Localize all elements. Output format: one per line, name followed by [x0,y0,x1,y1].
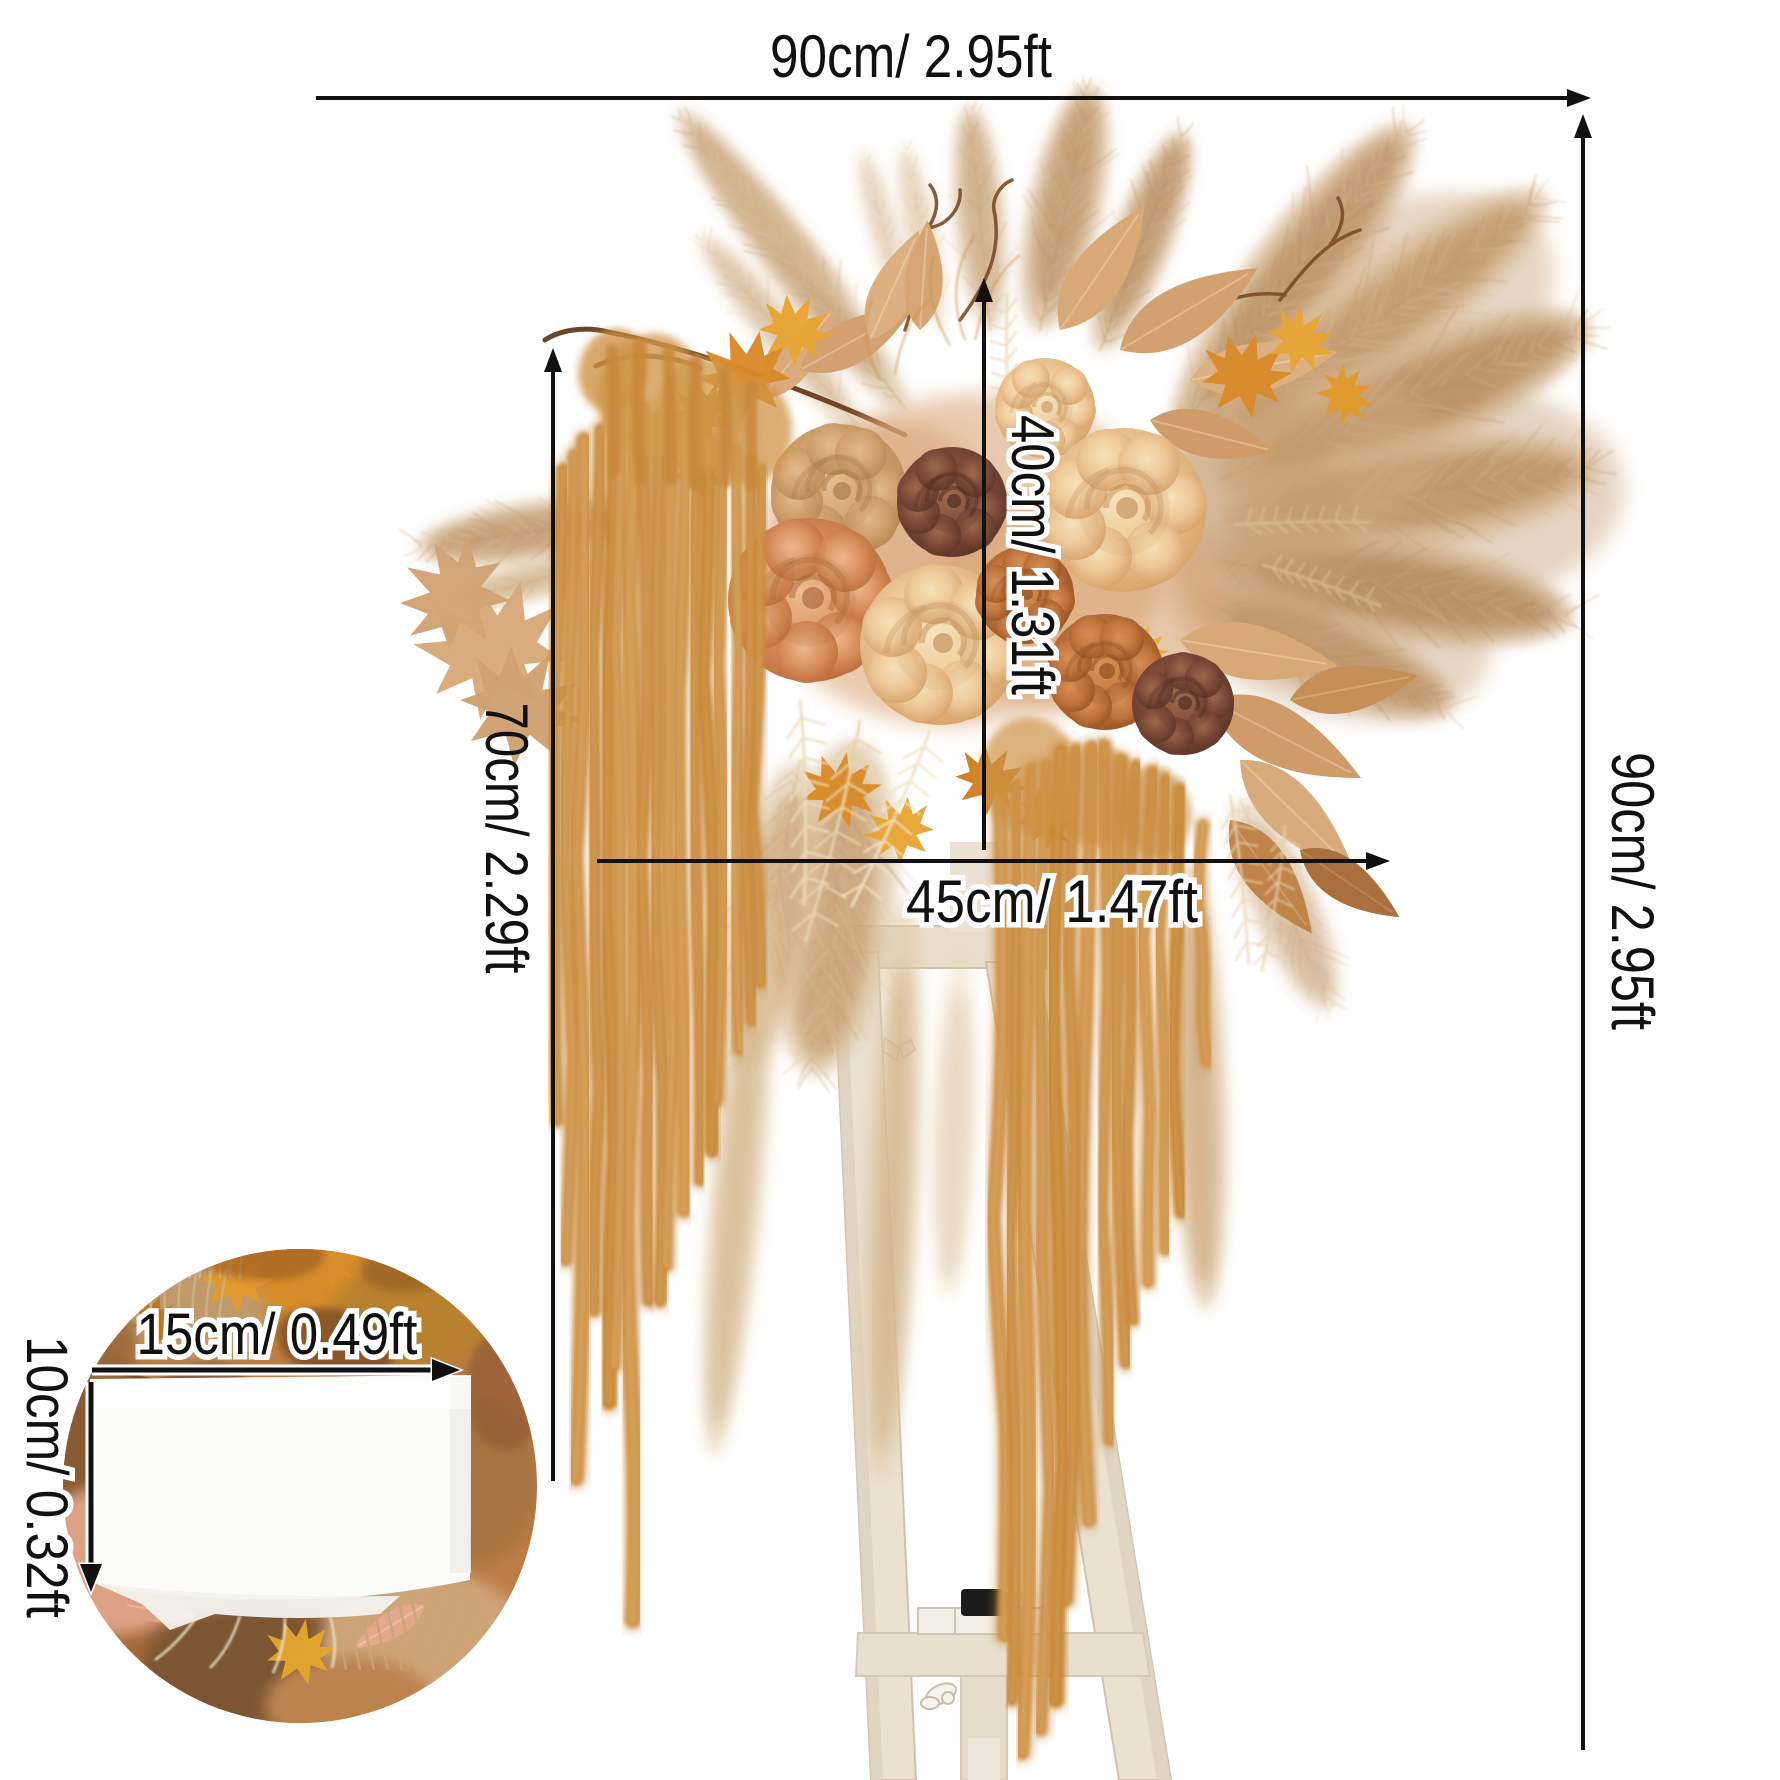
svg-text:45cm/ 1.47ft: 45cm/ 1.47ft [906,868,1198,935]
svg-text:15cm/ 0.49ft: 15cm/ 0.49ft [137,1302,418,1367]
svg-text:40cm/ 1.31ft: 40cm/ 1.31ft [999,415,1066,695]
svg-text:10cm/ 0.32ft: 10cm/ 0.32ft [14,1336,79,1618]
svg-text:90cm/ 2.95ft: 90cm/ 2.95ft [1599,752,1666,1030]
svg-text:90cm/ 2.95ft: 90cm/ 2.95ft [770,23,1052,90]
svg-text:70cm/ 2.29ft: 70cm/ 2.29ft [473,703,540,974]
